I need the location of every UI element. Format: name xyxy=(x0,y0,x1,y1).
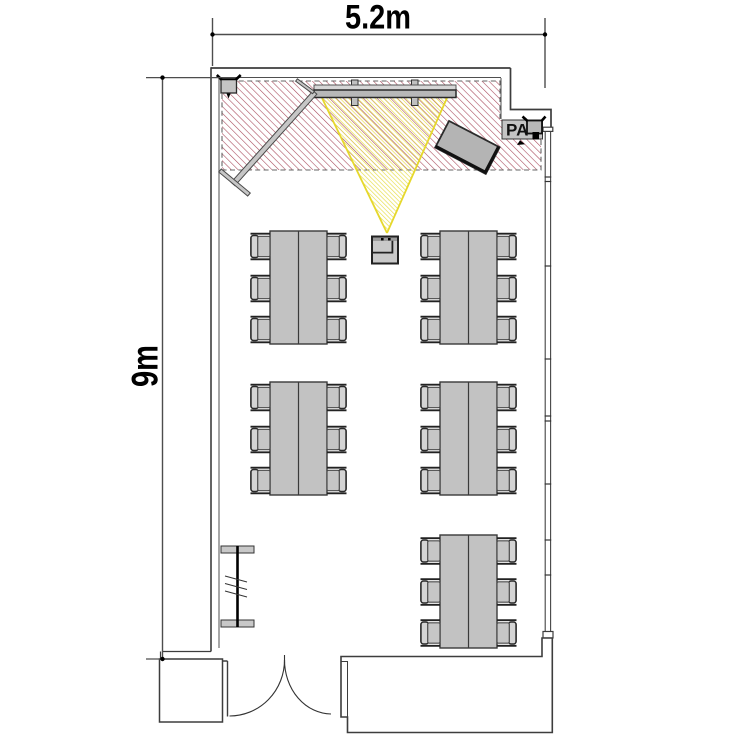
svg-text:5.2m: 5.2m xyxy=(345,0,411,37)
svg-text:9m: 9m xyxy=(125,345,166,387)
svg-text:PA: PA xyxy=(506,121,528,140)
